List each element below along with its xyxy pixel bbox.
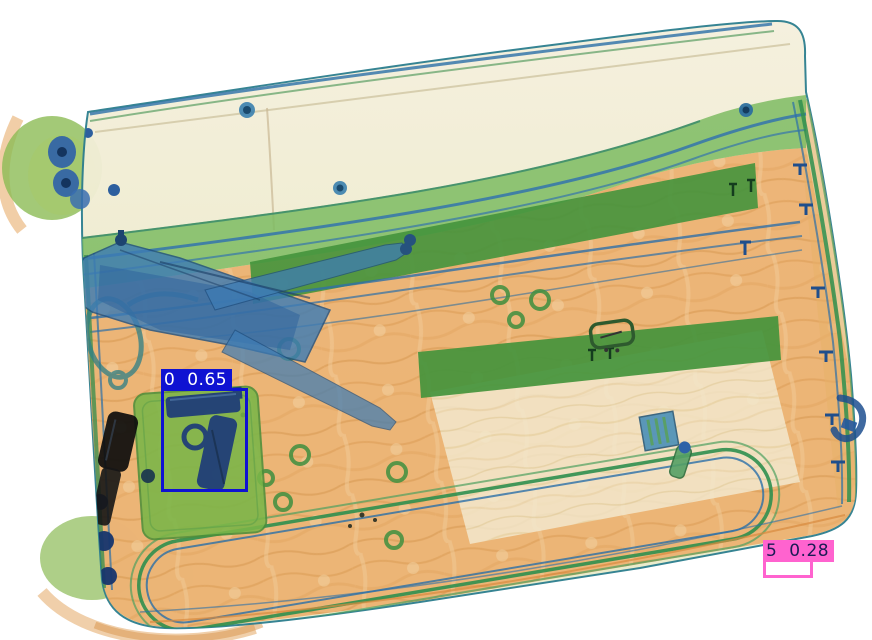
small-box-item: [639, 411, 678, 450]
detection-label-handgun: 0 0.65: [161, 369, 232, 391]
detection-box-handgun: 0 0.65: [161, 388, 248, 492]
xray-scan-viewport: 0 0.65 5 0.28: [0, 0, 872, 640]
detection-box-small-object: 5 0.28: [763, 559, 813, 578]
detection-label-small-object: 5 0.28: [763, 540, 834, 562]
pad-knob: [141, 469, 155, 483]
xray-scene: [0, 0, 872, 640]
